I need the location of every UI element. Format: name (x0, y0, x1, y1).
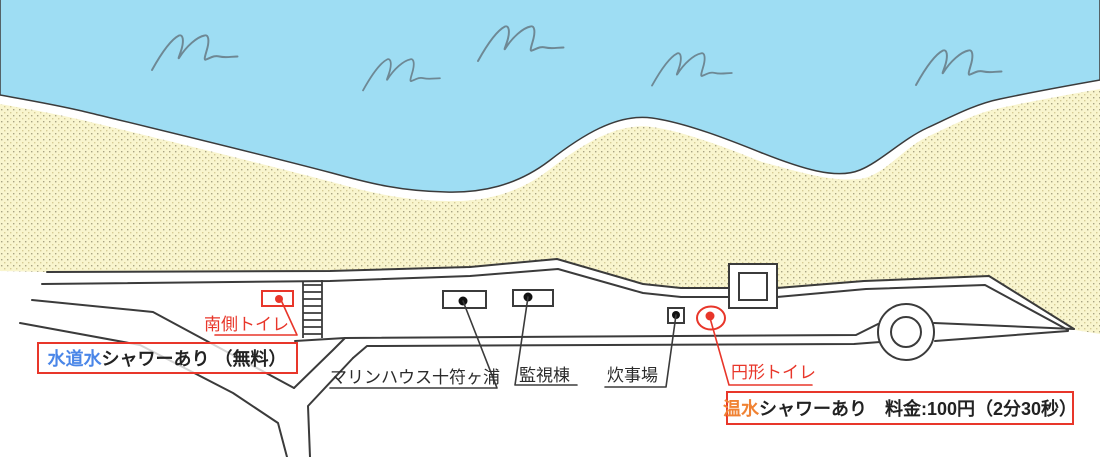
svg-text:水道水シャワーあり （無料）: 水道水シャワーあり （無料） (48, 348, 287, 369)
roundabout-icon (878, 304, 934, 360)
watch-tower-marker (513, 290, 553, 306)
freshwater-rest-text: シャワーあり （無料） (102, 348, 287, 369)
marine-house-label: マリンハウス十符ヶ浦 (330, 368, 500, 387)
freshwater-shower-callout: 水道水シャワーあり （無料） (38, 343, 297, 373)
platform-structure (729, 264, 777, 308)
watch-tower-label: 監視棟 (519, 366, 570, 385)
hotwater-highlight-text: 温水 (723, 398, 760, 419)
promenade-bottom-line (295, 323, 1074, 341)
cooking-area-label: 炊事場 (607, 366, 658, 385)
freshwater-highlight-text: 水道水 (48, 348, 103, 369)
toilet-markers (262, 291, 725, 330)
stairs-icon (303, 280, 322, 338)
beach-map: 南側トイレ マリンハウス十符ヶ浦 監視棟 炊事場 円形トイレ 水道水シャワーあり… (0, 0, 1100, 457)
map-canvas: 南側トイレ マリンハウス十符ヶ浦 監視棟 炊事場 円形トイレ 水道水シャワーあり… (0, 0, 1100, 457)
svg-text:温水シャワーあり 料金:100円（2分30秒）: 温水シャワーあり 料金:100円（2分30秒） (723, 398, 1077, 419)
hotwater-shower-callout: 温水シャワーあり 料金:100円（2分30秒） (723, 392, 1077, 424)
round-toilet-label: 円形トイレ (731, 363, 816, 382)
facility-markers (443, 290, 684, 323)
south-toilet-label: 南側トイレ (204, 315, 289, 334)
hotwater-rest-text: シャワーあり 料金:100円（2分30秒） (759, 398, 1077, 419)
